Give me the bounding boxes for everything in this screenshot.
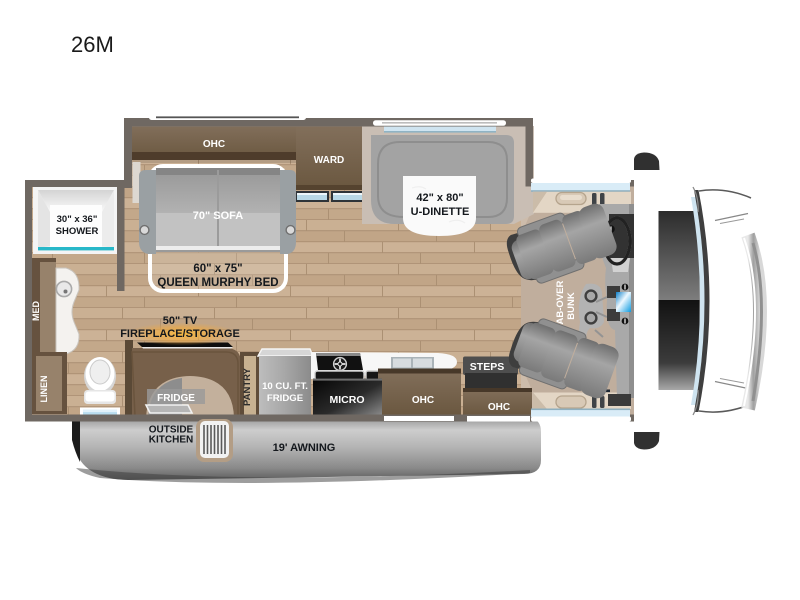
svg-text:70" SOFA: 70" SOFA: [193, 210, 244, 222]
svg-text:WARD: WARD: [314, 155, 345, 166]
svg-text:LINEN: LINEN: [39, 376, 49, 403]
svg-text:10 CU. FT.: 10 CU. FT.: [262, 381, 308, 392]
svg-text:42" x 80": 42" x 80": [416, 192, 463, 204]
svg-text:MICRO: MICRO: [330, 394, 365, 406]
svg-text:MED: MED: [31, 301, 41, 322]
svg-text:30" x 36": 30" x 36": [57, 214, 98, 225]
svg-text:OHC: OHC: [412, 395, 434, 406]
svg-text:OHC: OHC: [203, 139, 225, 150]
svg-text:60" x 75": 60" x 75": [193, 263, 242, 275]
svg-text:BUNK: BUNK: [566, 292, 577, 320]
svg-text:50" TV: 50" TV: [163, 315, 198, 327]
svg-text:FRIDGE: FRIDGE: [267, 393, 304, 404]
svg-text:OHC: OHC: [488, 402, 510, 413]
svg-text:KITCHEN: KITCHEN: [149, 435, 193, 446]
svg-text:FIREPLACE/STORAGE: FIREPLACE/STORAGE: [120, 328, 240, 340]
svg-text:26M: 26M: [71, 32, 114, 57]
svg-text:19' AWNING: 19' AWNING: [273, 442, 336, 454]
svg-text:STEPS: STEPS: [470, 361, 504, 373]
svg-text:PANTRY: PANTRY: [242, 367, 253, 406]
svg-text:QUEEN MURPHY BED: QUEEN MURPHY BED: [157, 277, 278, 289]
svg-text:SHOWER: SHOWER: [56, 226, 99, 237]
svg-text:FRIDGE: FRIDGE: [157, 393, 195, 404]
svg-text:U-DINETTE: U-DINETTE: [411, 206, 470, 218]
